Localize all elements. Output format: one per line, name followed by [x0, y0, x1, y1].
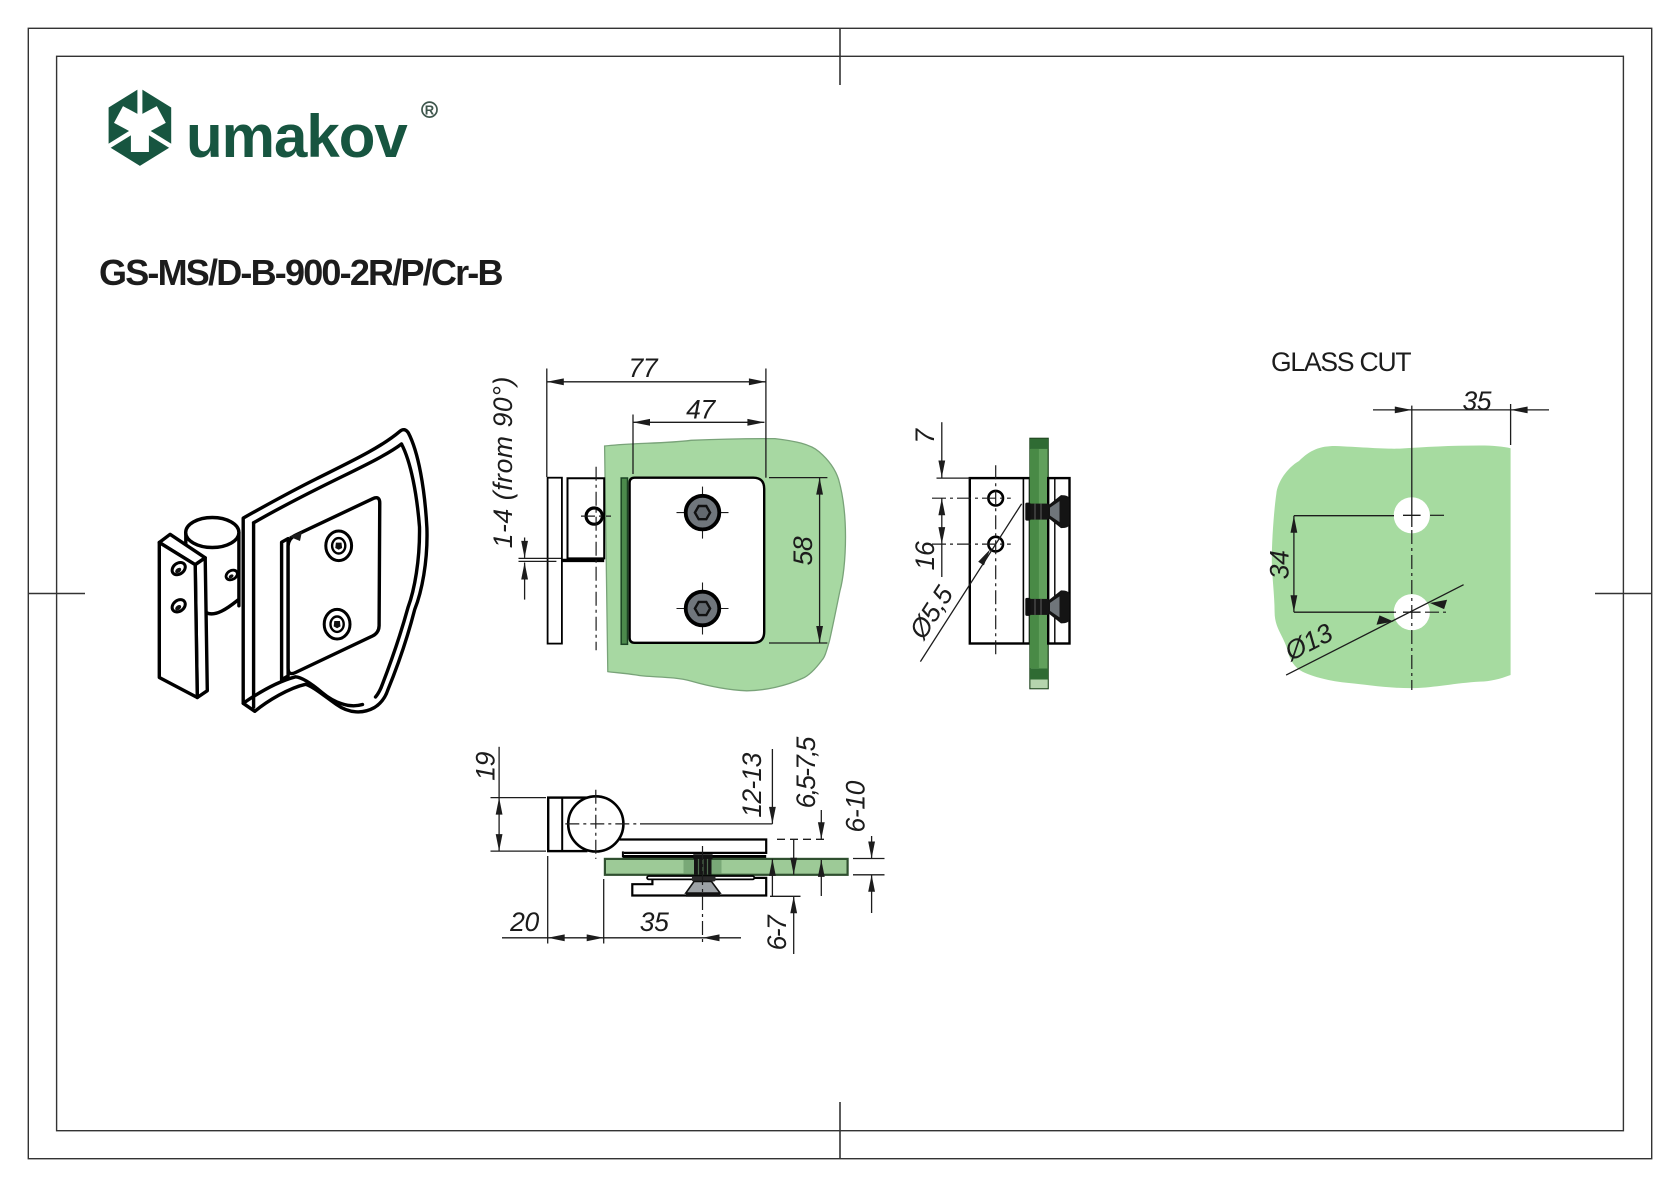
svg-text:77: 77	[629, 353, 659, 383]
svg-text:35: 35	[640, 907, 669, 937]
svg-text:6-10: 6-10	[840, 780, 870, 832]
svg-text:35: 35	[1462, 386, 1491, 416]
svg-text:47: 47	[686, 395, 716, 425]
svg-text:6,5-7,5: 6,5-7,5	[791, 736, 821, 808]
svg-text:58: 58	[788, 536, 818, 565]
svg-text:umakov: umakov	[186, 103, 408, 170]
svg-text:GLASS CUT: GLASS CUT	[1271, 347, 1411, 377]
svg-text:12-13: 12-13	[737, 752, 767, 817]
svg-text:34: 34	[1265, 551, 1295, 580]
svg-text:20: 20	[509, 907, 539, 937]
svg-text:19: 19	[470, 751, 500, 780]
svg-text:GS-MS/D-B-900-2R/P/Cr-B: GS-MS/D-B-900-2R/P/Cr-B	[99, 252, 502, 293]
svg-text:1-4 (from 90°): 1-4 (from 90°)	[488, 376, 518, 548]
svg-text:6-7: 6-7	[762, 914, 792, 950]
svg-text:R: R	[425, 103, 435, 118]
svg-text:7: 7	[910, 428, 940, 444]
svg-text:16: 16	[910, 541, 940, 570]
